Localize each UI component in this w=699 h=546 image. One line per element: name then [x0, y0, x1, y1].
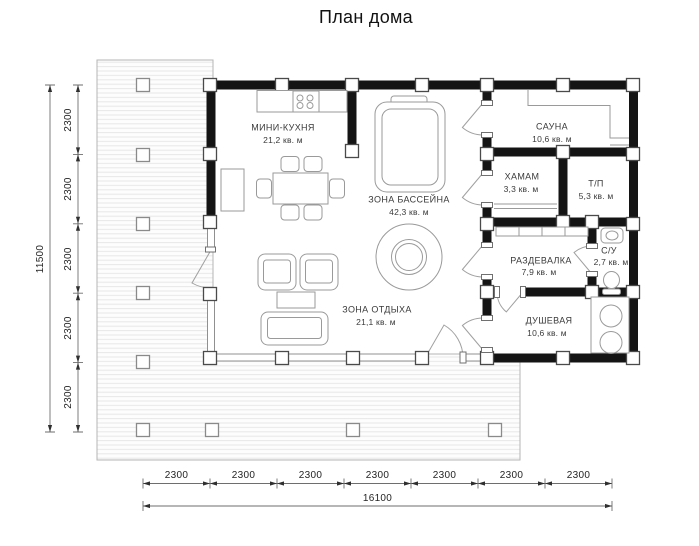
- dim-bottom-segment-3: 2300: [366, 471, 389, 481]
- dim-left-segment-2: 2300: [64, 247, 74, 270]
- room-label-shower: ДУШЕВАЯ: [526, 317, 573, 326]
- door-dressing: [462, 245, 483, 277]
- chair: [304, 205, 322, 220]
- door-sauna: [462, 103, 483, 135]
- sofa: [261, 312, 328, 345]
- chair: [304, 157, 322, 172]
- chair: [257, 179, 272, 198]
- room-area-kitchen: 21,2 кв. м: [263, 136, 303, 145]
- room-label-hamam: ХАМАМ: [505, 173, 540, 182]
- room-area-sauna: 10,6 кв. м: [532, 135, 572, 144]
- coffee-table: [277, 292, 315, 308]
- dim-bottom-segment-1: 2300: [232, 471, 255, 481]
- dim-bottom-segment-4: 2300: [433, 471, 456, 481]
- sink-icon: [601, 228, 623, 243]
- room-area-shower: 10,6 кв. м: [527, 329, 567, 338]
- dining-table: [273, 173, 328, 204]
- dim-left-segment-4: 2300: [64, 386, 74, 409]
- room-area-tp: 5,3 кв. м: [579, 192, 614, 201]
- door-shower: [462, 318, 483, 350]
- room-label-sauna: САУНА: [536, 123, 568, 132]
- chair: [281, 205, 299, 220]
- chair: [281, 157, 299, 172]
- room-area-hamam: 3,3 кв. м: [504, 185, 539, 194]
- hot-tub: [376, 224, 442, 290]
- floor-plan-page: План дома МИНИ-КУХНЯ 21,2 кв. м ЗОНА БАС…: [0, 0, 699, 546]
- hamam-bench: [494, 204, 557, 209]
- fridge: [221, 169, 244, 211]
- floor-plan-drawing: [0, 0, 699, 546]
- dim-bottom-segment-2: 2300: [299, 471, 322, 481]
- room-area-dressing: 7,9 кв. м: [522, 268, 557, 277]
- dim-bottom-segment-5: 2300: [500, 471, 523, 481]
- dim-bottom-total: 16100: [363, 494, 392, 504]
- stove-icon: [293, 91, 319, 112]
- pool-outer: [375, 102, 445, 192]
- dim-bottom-segment-6: 2300: [567, 471, 590, 481]
- chair: [330, 179, 345, 198]
- dim-bottom-segment-0: 2300: [165, 471, 188, 481]
- room-area-lounge: 21,1 кв. м: [356, 318, 396, 327]
- room-label-lounge: ЗОНА ОТДЫХА: [342, 306, 411, 315]
- page-title: План дома: [319, 8, 413, 26]
- door-deck-bottom: [425, 325, 463, 358]
- room-area-wc: 2,7 кв. м: [594, 258, 629, 267]
- room-label-dressing: РАЗДЕВАЛКА: [510, 257, 571, 266]
- room-label-kitchen: МИНИ-КУХНЯ: [251, 124, 315, 133]
- room-area-pool: 42,3 кв. м: [389, 208, 429, 217]
- room-label-tp: Т/П: [588, 180, 604, 189]
- dim-left-segment-3: 2300: [64, 316, 74, 339]
- dim-left-total: 11500: [36, 244, 46, 273]
- dim-left-segment-1: 2300: [64, 177, 74, 200]
- room-label-wc: С/У: [601, 247, 617, 256]
- toilet-icon: [604, 272, 620, 289]
- door-hamam: [462, 173, 483, 205]
- room-label-pool: ЗОНА БАССЕЙНА: [368, 196, 449, 205]
- dim-left-segment-0: 2300: [64, 108, 74, 131]
